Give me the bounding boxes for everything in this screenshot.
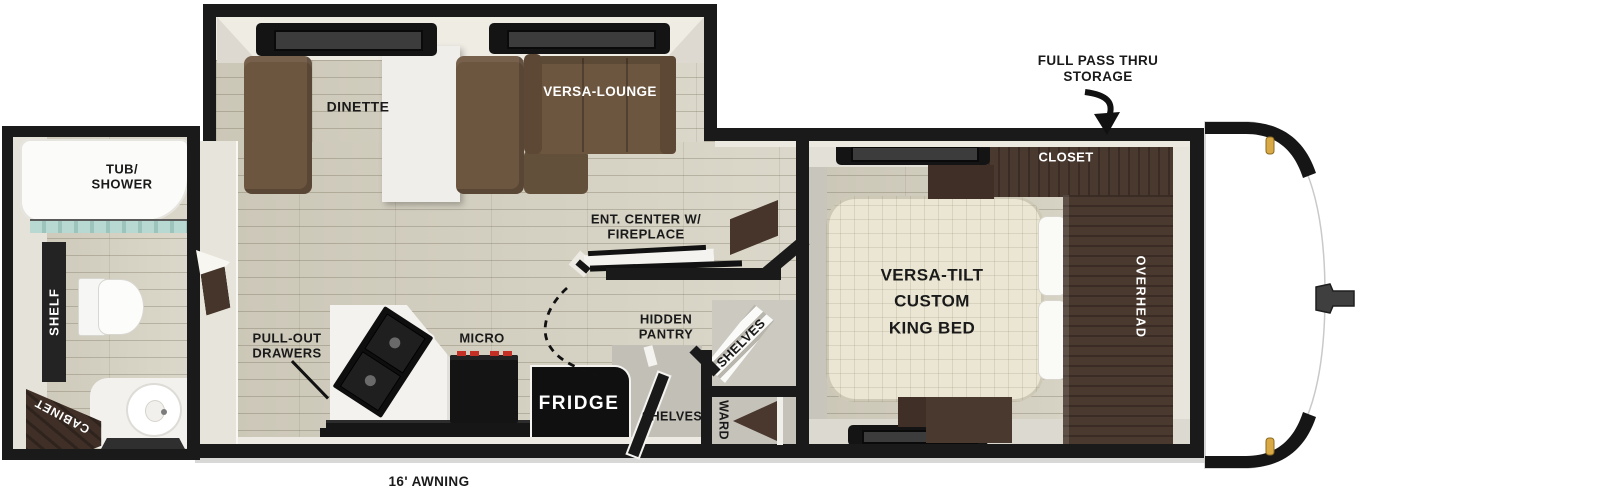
clearance-light-top: [1266, 137, 1274, 154]
ward-label: WARD: [716, 400, 731, 440]
sofa-armrest-right: [660, 56, 676, 154]
tub-shower-label: TUB/ SHOWER: [92, 162, 153, 193]
dinette-bench-right: [456, 56, 524, 194]
ent-center-label-line2: FIREPLACE: [591, 227, 701, 242]
bed-label-line2: CUSTOM: [881, 289, 984, 315]
sofa-cushion-seam: [626, 58, 628, 152]
sink-drain: [363, 373, 378, 388]
storage-arrow-shaft: [1085, 92, 1111, 117]
tub-shower-label-line1: TUB/: [92, 162, 153, 177]
shelves-lower-label: SHELVES: [642, 410, 702, 425]
overhead-label: OVERHEAD: [1133, 256, 1148, 339]
sofa-chaise: [524, 150, 588, 194]
pullout-label-line2: DRAWERS: [252, 346, 321, 361]
versa-lounge-sofa: [538, 56, 676, 154]
slideout-wall-top: [203, 4, 717, 17]
closet-label: CLOSET: [1038, 149, 1093, 164]
front-cap-top-trim: [1205, 122, 1316, 178]
overhead-cabinet: [1063, 195, 1173, 445]
fridge-label: FRIDGE: [539, 393, 620, 415]
main-wall-front: [1190, 128, 1204, 458]
window-dinette: [256, 23, 437, 56]
main-wall-top-face: [715, 141, 1190, 147]
front-cap-bottom-trim: [1205, 412, 1316, 468]
pullout-drawers-label: PULL-OUT DRAWERS: [252, 331, 321, 362]
bathroom-sink: [126, 383, 182, 437]
bedroom-walkway: [809, 165, 827, 420]
shower-glass-door: [30, 219, 188, 233]
pantry-label-line2: PANTRY: [639, 327, 693, 342]
burner-mark: [503, 351, 512, 356]
pantry-wall-horizontal: [701, 386, 798, 397]
bed-label-line3: KING BED: [881, 315, 984, 341]
pullout-label-line1: PULL-OUT: [252, 331, 321, 346]
pantry-label-line1: HIDDEN: [639, 312, 693, 327]
dinette-label: DINETTE: [327, 99, 390, 116]
storage-label-line1: FULL PASS THRU: [1038, 53, 1159, 69]
sink-drain: [161, 409, 167, 415]
bed-base-block: [926, 397, 1012, 443]
bathroom-wall-rear: [2, 126, 13, 460]
window-lounge: [489, 23, 670, 54]
shelf-label: SHELF: [46, 288, 61, 336]
main-wall-bottom: [187, 444, 1204, 458]
slideout-wall-left: [203, 4, 216, 141]
bathroom-wall-top: [2, 126, 198, 137]
ent-center-wall: [606, 268, 781, 280]
sofa-cushion-seam: [582, 58, 584, 152]
bed-label-line1: VERSA-TILT: [881, 262, 984, 288]
clearance-light-bottom: [1266, 438, 1274, 455]
pass-thru-storage-label: FULL PASS THRU STORAGE: [1038, 53, 1159, 85]
awning-label: 16' AWNING: [389, 474, 470, 490]
storage-label-line2: STORAGE: [1038, 69, 1159, 85]
closet-step-block: [928, 165, 994, 199]
ent-center-label: ENT. CENTER W/ FIREPLACE: [591, 212, 701, 243]
floorplan-canvas: TUB/ SHOWER SHELF CABINET DINETTE VERSA-…: [0, 0, 1600, 492]
dinette-bench-left: [244, 56, 312, 194]
hitch-coupler: [1316, 284, 1354, 313]
micro-label: MICRO: [459, 330, 504, 345]
burner-mark: [490, 351, 499, 356]
sink-drain: [387, 335, 402, 350]
tub-shower-label-line2: SHOWER: [92, 177, 153, 192]
main-wall-top: [715, 128, 1202, 141]
burner-mark: [470, 351, 479, 356]
front-cap-body: [1205, 122, 1325, 468]
dinette-table: [382, 46, 460, 202]
ward-divider-panel: [777, 397, 783, 445]
king-bed-label: VERSA-TILT CUSTOM KING BED: [881, 262, 984, 341]
burner-mark: [457, 351, 466, 356]
slideout-wall-right: [704, 4, 717, 141]
sofa-armrest-left: [524, 54, 542, 154]
range-stove: [450, 355, 518, 423]
toilet-bowl: [98, 279, 144, 335]
bathroom-wall-inner: [187, 126, 200, 460]
bathroom-wall-bottom: [2, 449, 198, 460]
ent-center-label-line1: ENT. CENTER W/: [591, 212, 701, 227]
bed-base-block: [898, 397, 928, 427]
versa-lounge-label: VERSA-LOUNGE: [543, 84, 657, 100]
hidden-pantry-label: HIDDEN PANTRY: [639, 312, 693, 343]
bedroom-wall: [796, 139, 809, 444]
ground-shadow: [195, 458, 1207, 463]
